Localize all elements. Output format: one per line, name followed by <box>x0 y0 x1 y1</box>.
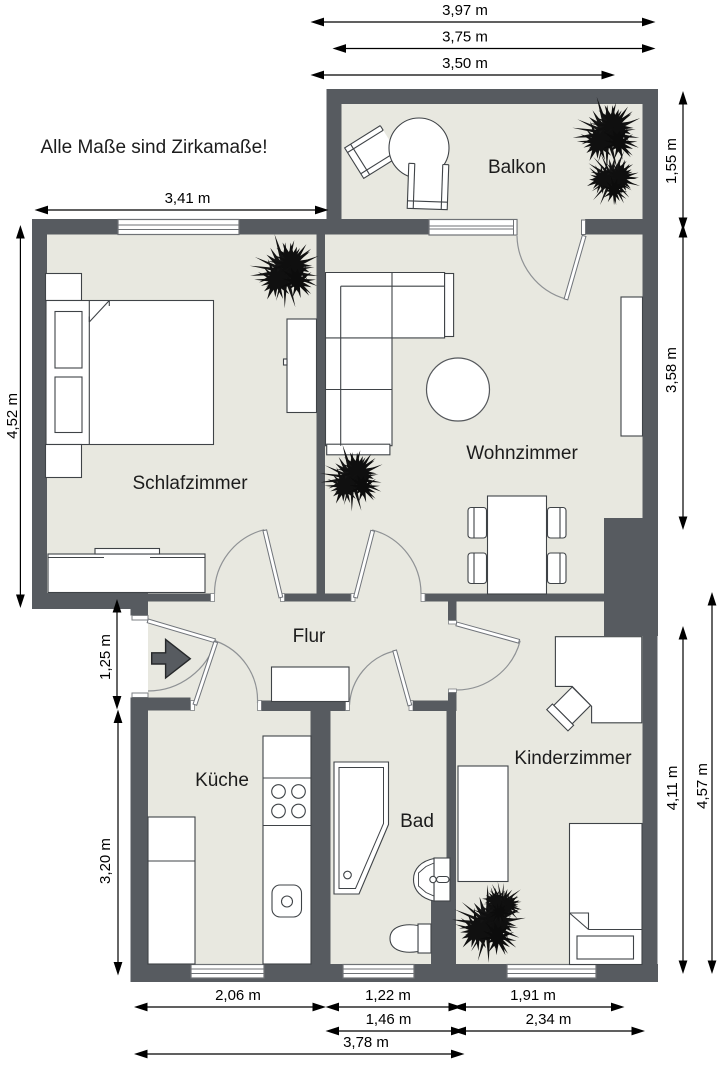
svg-text:3,78 m: 3,78 m <box>343 1034 389 1051</box>
svg-text:4,57 m: 4,57 m <box>694 763 711 809</box>
svg-text:Flur: Flur <box>293 626 326 647</box>
svg-text:1,25 m: 1,25 m <box>97 634 114 680</box>
svg-text:3,75 m: 3,75 m <box>442 29 488 46</box>
svg-text:2,34 m: 2,34 m <box>526 1011 572 1028</box>
svg-text:Kinderzimmer: Kinderzimmer <box>514 748 632 769</box>
svg-text:3,58 m: 3,58 m <box>663 347 680 393</box>
svg-text:1,55 m: 1,55 m <box>663 138 680 184</box>
svg-text:Balkon: Balkon <box>488 157 546 178</box>
svg-text:Küche: Küche <box>195 770 249 791</box>
svg-text:4,52 m: 4,52 m <box>4 393 21 439</box>
svg-text:3,41 m: 3,41 m <box>165 190 211 207</box>
svg-text:3,50 m: 3,50 m <box>442 55 488 72</box>
svg-text:Wohnzimmer: Wohnzimmer <box>466 443 578 464</box>
svg-text:1,91 m: 1,91 m <box>510 987 556 1004</box>
svg-text:3,20 m: 3,20 m <box>97 838 114 884</box>
svg-text:1,22 m: 1,22 m <box>365 987 411 1004</box>
svg-text:1,46 m: 1,46 m <box>366 1011 412 1028</box>
svg-text:Bad: Bad <box>400 811 434 832</box>
svg-text:2,06 m: 2,06 m <box>215 987 261 1004</box>
svg-text:4,11 m: 4,11 m <box>664 766 681 811</box>
svg-text:Alle Maße sind Zirkamaße!: Alle Maße sind Zirkamaße! <box>40 137 267 158</box>
svg-text:Schlafzimmer: Schlafzimmer <box>132 473 248 494</box>
svg-text:3,97 m: 3,97 m <box>442 2 488 19</box>
